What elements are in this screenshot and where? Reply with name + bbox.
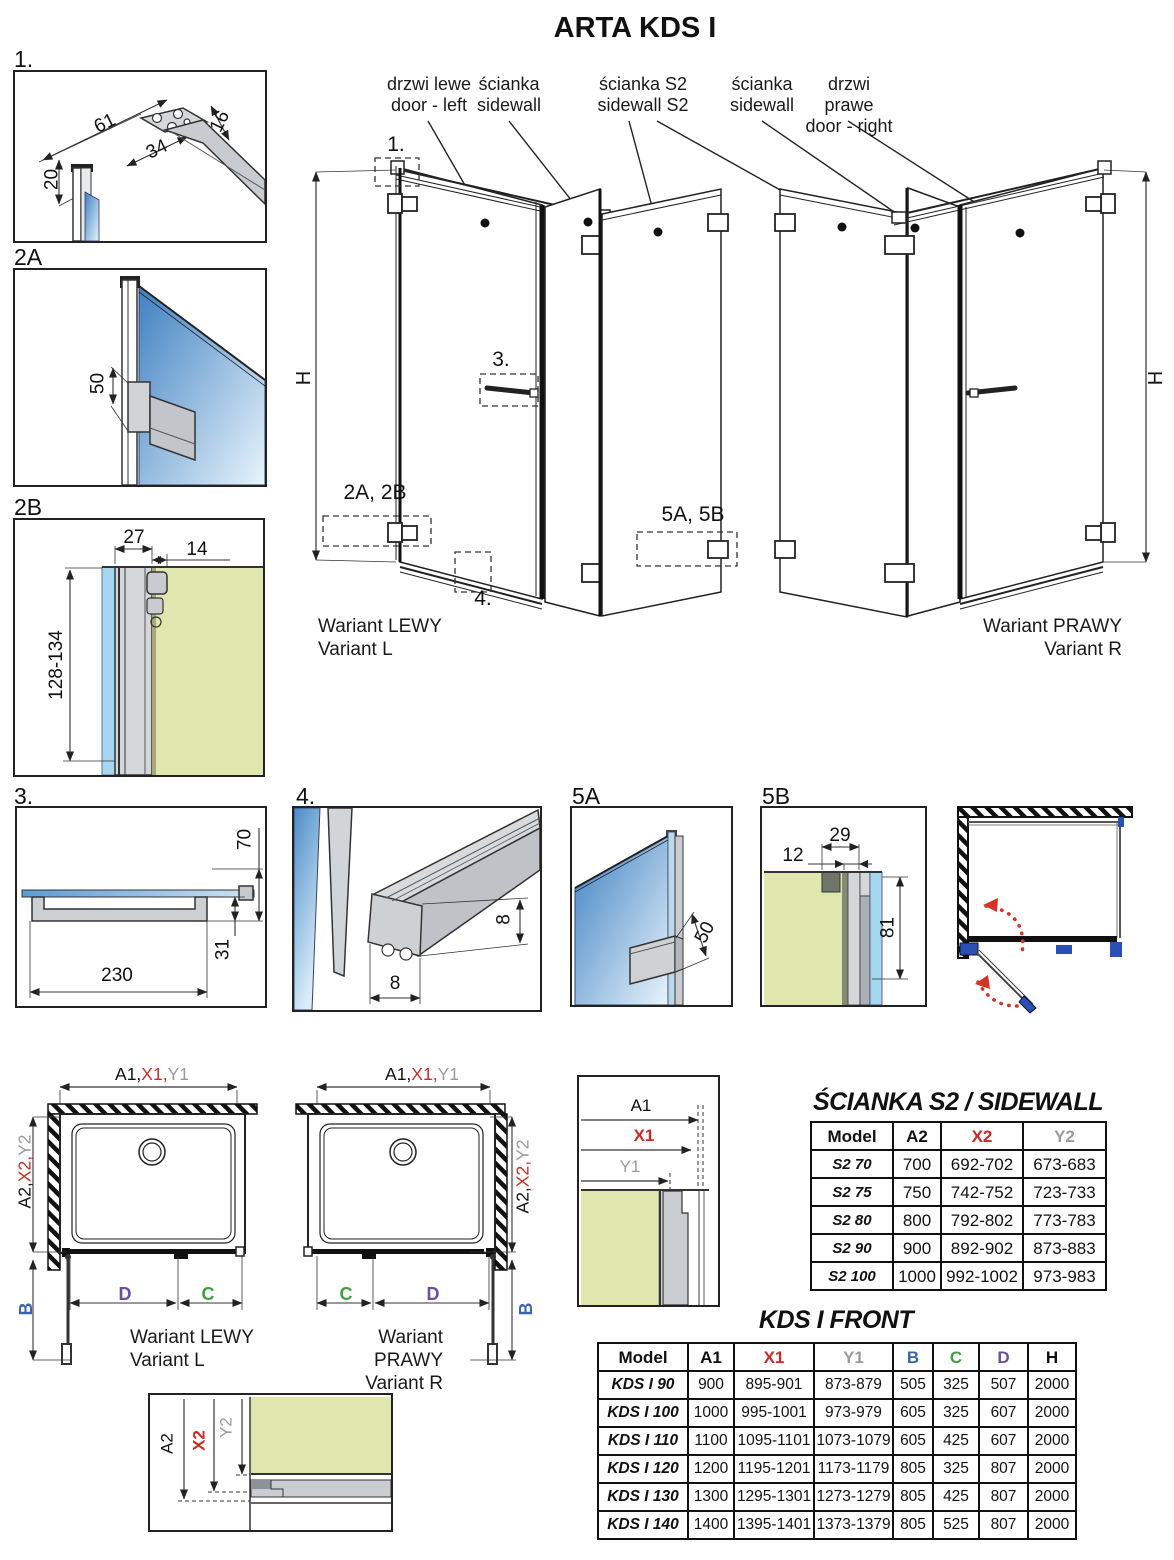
value-cell: 805 (893, 1483, 933, 1511)
dim-detail-side-box: A2 X2 Y2 (148, 1393, 393, 1532)
value-cell: 792-802 (941, 1206, 1023, 1234)
value-cell: 507 (979, 1371, 1028, 1399)
value-cell: 873-883 (1023, 1234, 1106, 1262)
detail-5a-drawing (572, 808, 731, 1005)
detail-2a-label: 2A (14, 244, 42, 271)
plan-left-caption-line1: Wariant LEWY (130, 1326, 254, 1349)
value-cell: 723-733 (1023, 1178, 1106, 1206)
callout-3: 3. (479, 349, 523, 370)
value-cell: 892-902 (941, 1234, 1023, 1262)
detail-5b-box: 29 12 81 (760, 806, 927, 1007)
value-cell: 1400 (688, 1511, 734, 1539)
table-row: KDS I 11011001095-11011073-1079605425607… (598, 1427, 1076, 1455)
variant-right-line2: Variant R (950, 638, 1122, 661)
value-cell: 525 (933, 1511, 979, 1539)
plan-right-y1: Y1 (438, 1064, 459, 1084)
value-cell: 2000 (1028, 1399, 1076, 1427)
plan-right-caption-line1: Wariant PRAWY (317, 1326, 443, 1372)
model-cell: S2 80 (811, 1206, 893, 1234)
dim-128-134: 128-134 (47, 620, 71, 710)
col-header-x1: X1 (734, 1343, 814, 1371)
value-cell: 605 (893, 1427, 933, 1455)
value-cell: 2000 (1028, 1511, 1076, 1539)
callout-4: 4. (461, 588, 505, 609)
plan-left-top-dim: A1,X1,Y1 (60, 1064, 244, 1085)
value-cell: 805 (893, 1455, 933, 1483)
variant-right-caption: Wariant PRAWY Variant R (950, 615, 1122, 661)
dim-detail-y1: Y1 (615, 1158, 645, 1175)
variant-right-drawing (775, 161, 1146, 617)
plan-right-x1: X1, (411, 1064, 437, 1084)
model-cell: KDS I 130 (598, 1483, 688, 1511)
label-door-left-en: door - left (385, 95, 473, 116)
h-dim-right: H (1146, 366, 1170, 390)
value-cell: 873-879 (814, 1371, 893, 1399)
model-cell: KDS I 120 (598, 1455, 688, 1483)
technical-drawing-page: ARTA KDS I drzwi lewe door - left ściank… (0, 0, 1174, 1560)
value-cell: 607 (979, 1427, 1028, 1455)
value-cell: 505 (893, 1371, 933, 1399)
value-cell: 900 (688, 1371, 734, 1399)
value-cell: 1073-1079 (814, 1427, 893, 1455)
plan-right-b: B (517, 1297, 535, 1321)
plan-left-c: C (196, 1285, 220, 1303)
plan-left-a2: A2, (15, 1182, 35, 1208)
value-cell: 973-979 (814, 1399, 893, 1427)
label-sidewall-s2-pl: ścianka S2 (594, 74, 692, 95)
dim-detail-a1: A1 (625, 1097, 657, 1114)
table-row: KDS I 90900895-901873-8795053255072000 (598, 1371, 1076, 1399)
col-header-b: B (893, 1343, 933, 1371)
plan-right-caption: Wariant PRAWY Variant R (317, 1326, 443, 1395)
value-cell: 2000 (1028, 1483, 1076, 1511)
plan-right-d: D (421, 1285, 445, 1303)
plan-right-c: C (334, 1285, 358, 1303)
value-cell: 607 (979, 1399, 1028, 1427)
value-cell: 700 (893, 1150, 941, 1178)
detail-3-box: 70 31 230 (15, 806, 267, 1008)
plan-right-x2: X2, (513, 1161, 533, 1187)
header-row: ModelA1X1Y1BCDH (598, 1343, 1076, 1371)
label-door-left-pl: drzwi lewe (385, 74, 473, 95)
col-header-x2: X2 (941, 1122, 1023, 1150)
col-header-h: H (1028, 1343, 1076, 1371)
plan-left-side-dim: A2,X2,Y2 (15, 1132, 36, 1212)
table-row: S2 1001000992-1002973-983 (811, 1262, 1106, 1290)
dim-14: 14 (177, 540, 217, 559)
plan-right-a1: A1, (385, 1064, 411, 1084)
label-sidewall-left-en: sidewall (468, 95, 550, 116)
dim-81: 81 (879, 915, 898, 941)
variant-left-caption: Wariant LEWY Variant L (318, 615, 442, 661)
dim-29: 29 (821, 826, 859, 845)
model-cell: S2 90 (811, 1234, 893, 1262)
table-row: S2 70700692-702673-683 (811, 1150, 1106, 1178)
callout-2a2b: 2A, 2B (319, 482, 431, 503)
label-sidewall-right-en: sidewall (720, 95, 804, 116)
detail-2a-drawing (15, 270, 265, 485)
value-cell: 1300 (688, 1483, 734, 1511)
model-cell: KDS I 100 (598, 1399, 688, 1427)
dim-12: 12 (773, 846, 813, 865)
value-cell: 807 (979, 1455, 1028, 1483)
table-row: S2 75750742-752723-733 (811, 1178, 1106, 1206)
h-dim-left: H (294, 366, 318, 390)
variant-left-line1: Wariant LEWY (318, 615, 442, 638)
value-cell: 2000 (1028, 1371, 1076, 1399)
model-cell: S2 70 (811, 1150, 893, 1178)
label-sidewall-left-pl: ścianka (468, 74, 550, 95)
value-cell: 973-983 (1023, 1262, 1106, 1290)
value-cell: 1000 (893, 1262, 941, 1290)
value-cell: 895-901 (734, 1371, 814, 1399)
front-table-grid: ModelA1X1Y1BCDHKDS I 90900895-901873-879… (597, 1342, 1077, 1540)
table-row: KDS I 13013001295-13011273-1279805425807… (598, 1483, 1076, 1511)
value-cell: 750 (893, 1178, 941, 1206)
s2-table: ModelA2X2Y2S2 70700692-702673-683S2 7575… (810, 1121, 1107, 1291)
label-sidewall-right: ścianka sidewall (720, 74, 804, 116)
label-sidewall-s2-en: sidewall S2 (594, 95, 692, 116)
s2-table-grid: ModelA2X2Y2S2 70700692-702673-683S2 7575… (810, 1121, 1107, 1291)
value-cell: 673-683 (1023, 1150, 1106, 1178)
dim-detail-x1: X1 (629, 1127, 659, 1144)
detail-1-box: 61 34 16 20 (13, 70, 267, 243)
plan-left-d: D (113, 1285, 137, 1303)
value-cell: 325 (933, 1455, 979, 1483)
dim-detail-y2: Y2 (218, 1416, 235, 1440)
detail-2a-box: 50 (13, 268, 267, 487)
detail-5a-box: 50 (570, 806, 733, 1007)
dim-50-2a: 50 (89, 371, 108, 397)
value-cell: 742-752 (941, 1178, 1023, 1206)
main-drawing (280, 130, 1174, 690)
value-cell: 800 (893, 1206, 941, 1234)
label-sidewall-s2: ścianka S2 sidewall S2 (594, 74, 692, 116)
callout-1: 1. (374, 134, 418, 155)
dim-detail-a2: A2 (159, 1432, 176, 1456)
plan-right-top-dim: A1,X1,Y1 (330, 1064, 514, 1085)
value-cell: 325 (933, 1371, 979, 1399)
col-header-d: D (979, 1343, 1028, 1371)
value-cell: 325 (933, 1399, 979, 1427)
front-table-heading: KDS I FRONT (736, 1306, 936, 1335)
header-row: ModelA2X2Y2 (811, 1122, 1106, 1150)
value-cell: 1200 (688, 1455, 734, 1483)
table-row: KDS I 1001000995-1001973-979605325607200… (598, 1399, 1076, 1427)
value-cell: 773-783 (1023, 1206, 1106, 1234)
plan-left-a1: A1, (115, 1064, 141, 1084)
detail-1-label: 1. (14, 46, 33, 73)
plan-right-y2: Y2 (513, 1140, 533, 1161)
value-cell: 1095-1101 (734, 1427, 814, 1455)
col-header-a2: A2 (893, 1122, 941, 1150)
model-cell: S2 100 (811, 1262, 893, 1290)
value-cell: 992-1002 (941, 1262, 1023, 1290)
plan-left-y2: Y2 (15, 1135, 35, 1156)
table-row: S2 80800792-802773-783 (811, 1206, 1106, 1234)
col-header-a1: A1 (688, 1343, 734, 1371)
plan-left-drawing (20, 1060, 300, 1370)
plan-left-x1: X1, (141, 1064, 167, 1084)
value-cell: 1000 (688, 1399, 734, 1427)
value-cell: 807 (979, 1483, 1028, 1511)
value-cell: 2000 (1028, 1427, 1076, 1455)
value-cell: 900 (893, 1234, 941, 1262)
dim-20: 20 (43, 167, 62, 193)
callout-5a5b: 5A, 5B (637, 504, 749, 525)
col-header-model: Model (598, 1343, 688, 1371)
front-table: ModelA1X1Y1BCDHKDS I 90900895-901873-879… (597, 1342, 1077, 1540)
col-header-model: Model (811, 1122, 893, 1150)
plan-left-b: B (17, 1297, 35, 1321)
top-view-drawing (948, 800, 1148, 1025)
table-row: KDS I 14014001395-14011373-1379805525807… (598, 1511, 1076, 1539)
model-cell: KDS I 90 (598, 1371, 688, 1399)
detail-2b-label: 2B (14, 494, 42, 521)
variant-left-line2: Variant L (318, 638, 442, 661)
page-title: ARTA KDS I (435, 12, 835, 45)
value-cell: 2000 (1028, 1455, 1076, 1483)
plan-right-caption-line2: Variant R (317, 1372, 443, 1395)
value-cell: 1273-1279 (814, 1483, 893, 1511)
value-cell: 1295-1301 (734, 1483, 814, 1511)
dim-detail-x2: X2 (191, 1429, 208, 1453)
variant-right-line1: Wariant PRAWY (950, 615, 1122, 638)
variant-left-drawing (316, 161, 728, 616)
dim-27: 27 (115, 528, 153, 547)
value-cell: 995-1001 (734, 1399, 814, 1427)
model-cell: S2 75 (811, 1178, 893, 1206)
dim-detail-front-box: A1 X1 Y1 (577, 1075, 720, 1307)
model-cell: KDS I 110 (598, 1427, 688, 1455)
plan-left-caption: Wariant LEWY Variant L (130, 1326, 254, 1372)
detail-1-drawing (15, 72, 265, 241)
value-cell: 1395-1401 (734, 1511, 814, 1539)
col-header-y1: Y1 (814, 1343, 893, 1371)
value-cell: 425 (933, 1483, 979, 1511)
label-door-left: drzwi lewe door - left (385, 74, 473, 116)
col-header-c: C (933, 1343, 979, 1371)
value-cell: 425 (933, 1427, 979, 1455)
value-cell: 805 (893, 1511, 933, 1539)
table-row: S2 90900892-902873-883 (811, 1234, 1106, 1262)
model-cell: KDS I 140 (598, 1511, 688, 1539)
detail-4-box: 8 8 (292, 806, 542, 1012)
plan-right-a2: A2, (513, 1187, 533, 1213)
dim-70: 70 (236, 827, 255, 853)
dim-8-width: 8 (382, 974, 408, 993)
value-cell: 1100 (688, 1427, 734, 1455)
plan-left-caption-line2: Variant L (130, 1349, 254, 1372)
value-cell: 605 (893, 1399, 933, 1427)
value-cell: 807 (979, 1511, 1028, 1539)
detail-2b-box: 27 14 128-134 (13, 518, 265, 777)
dim-31: 31 (214, 937, 233, 963)
value-cell: 1373-1379 (814, 1511, 893, 1539)
value-cell: 1195-1201 (734, 1455, 814, 1483)
label-door-right-pl: drzwi prawe (804, 74, 894, 116)
col-header-y2: Y2 (1023, 1122, 1106, 1150)
plan-left-x2: X2, (15, 1156, 35, 1182)
value-cell: 692-702 (941, 1150, 1023, 1178)
plan-left-y1: Y1 (168, 1064, 189, 1084)
label-sidewall-left: ścianka sidewall (468, 74, 550, 116)
dim-8-height: 8 (495, 907, 514, 933)
table-row: KDS I 12012001195-12011173-1179805325807… (598, 1455, 1076, 1483)
plan-right-side-dim: A2,X2,Y2 (513, 1137, 534, 1217)
label-sidewall-right-pl: ścianka (720, 74, 804, 95)
dim-230: 230 (87, 966, 147, 985)
dim-detail-side-drawing (150, 1395, 391, 1530)
value-cell: 1173-1179 (814, 1455, 893, 1483)
